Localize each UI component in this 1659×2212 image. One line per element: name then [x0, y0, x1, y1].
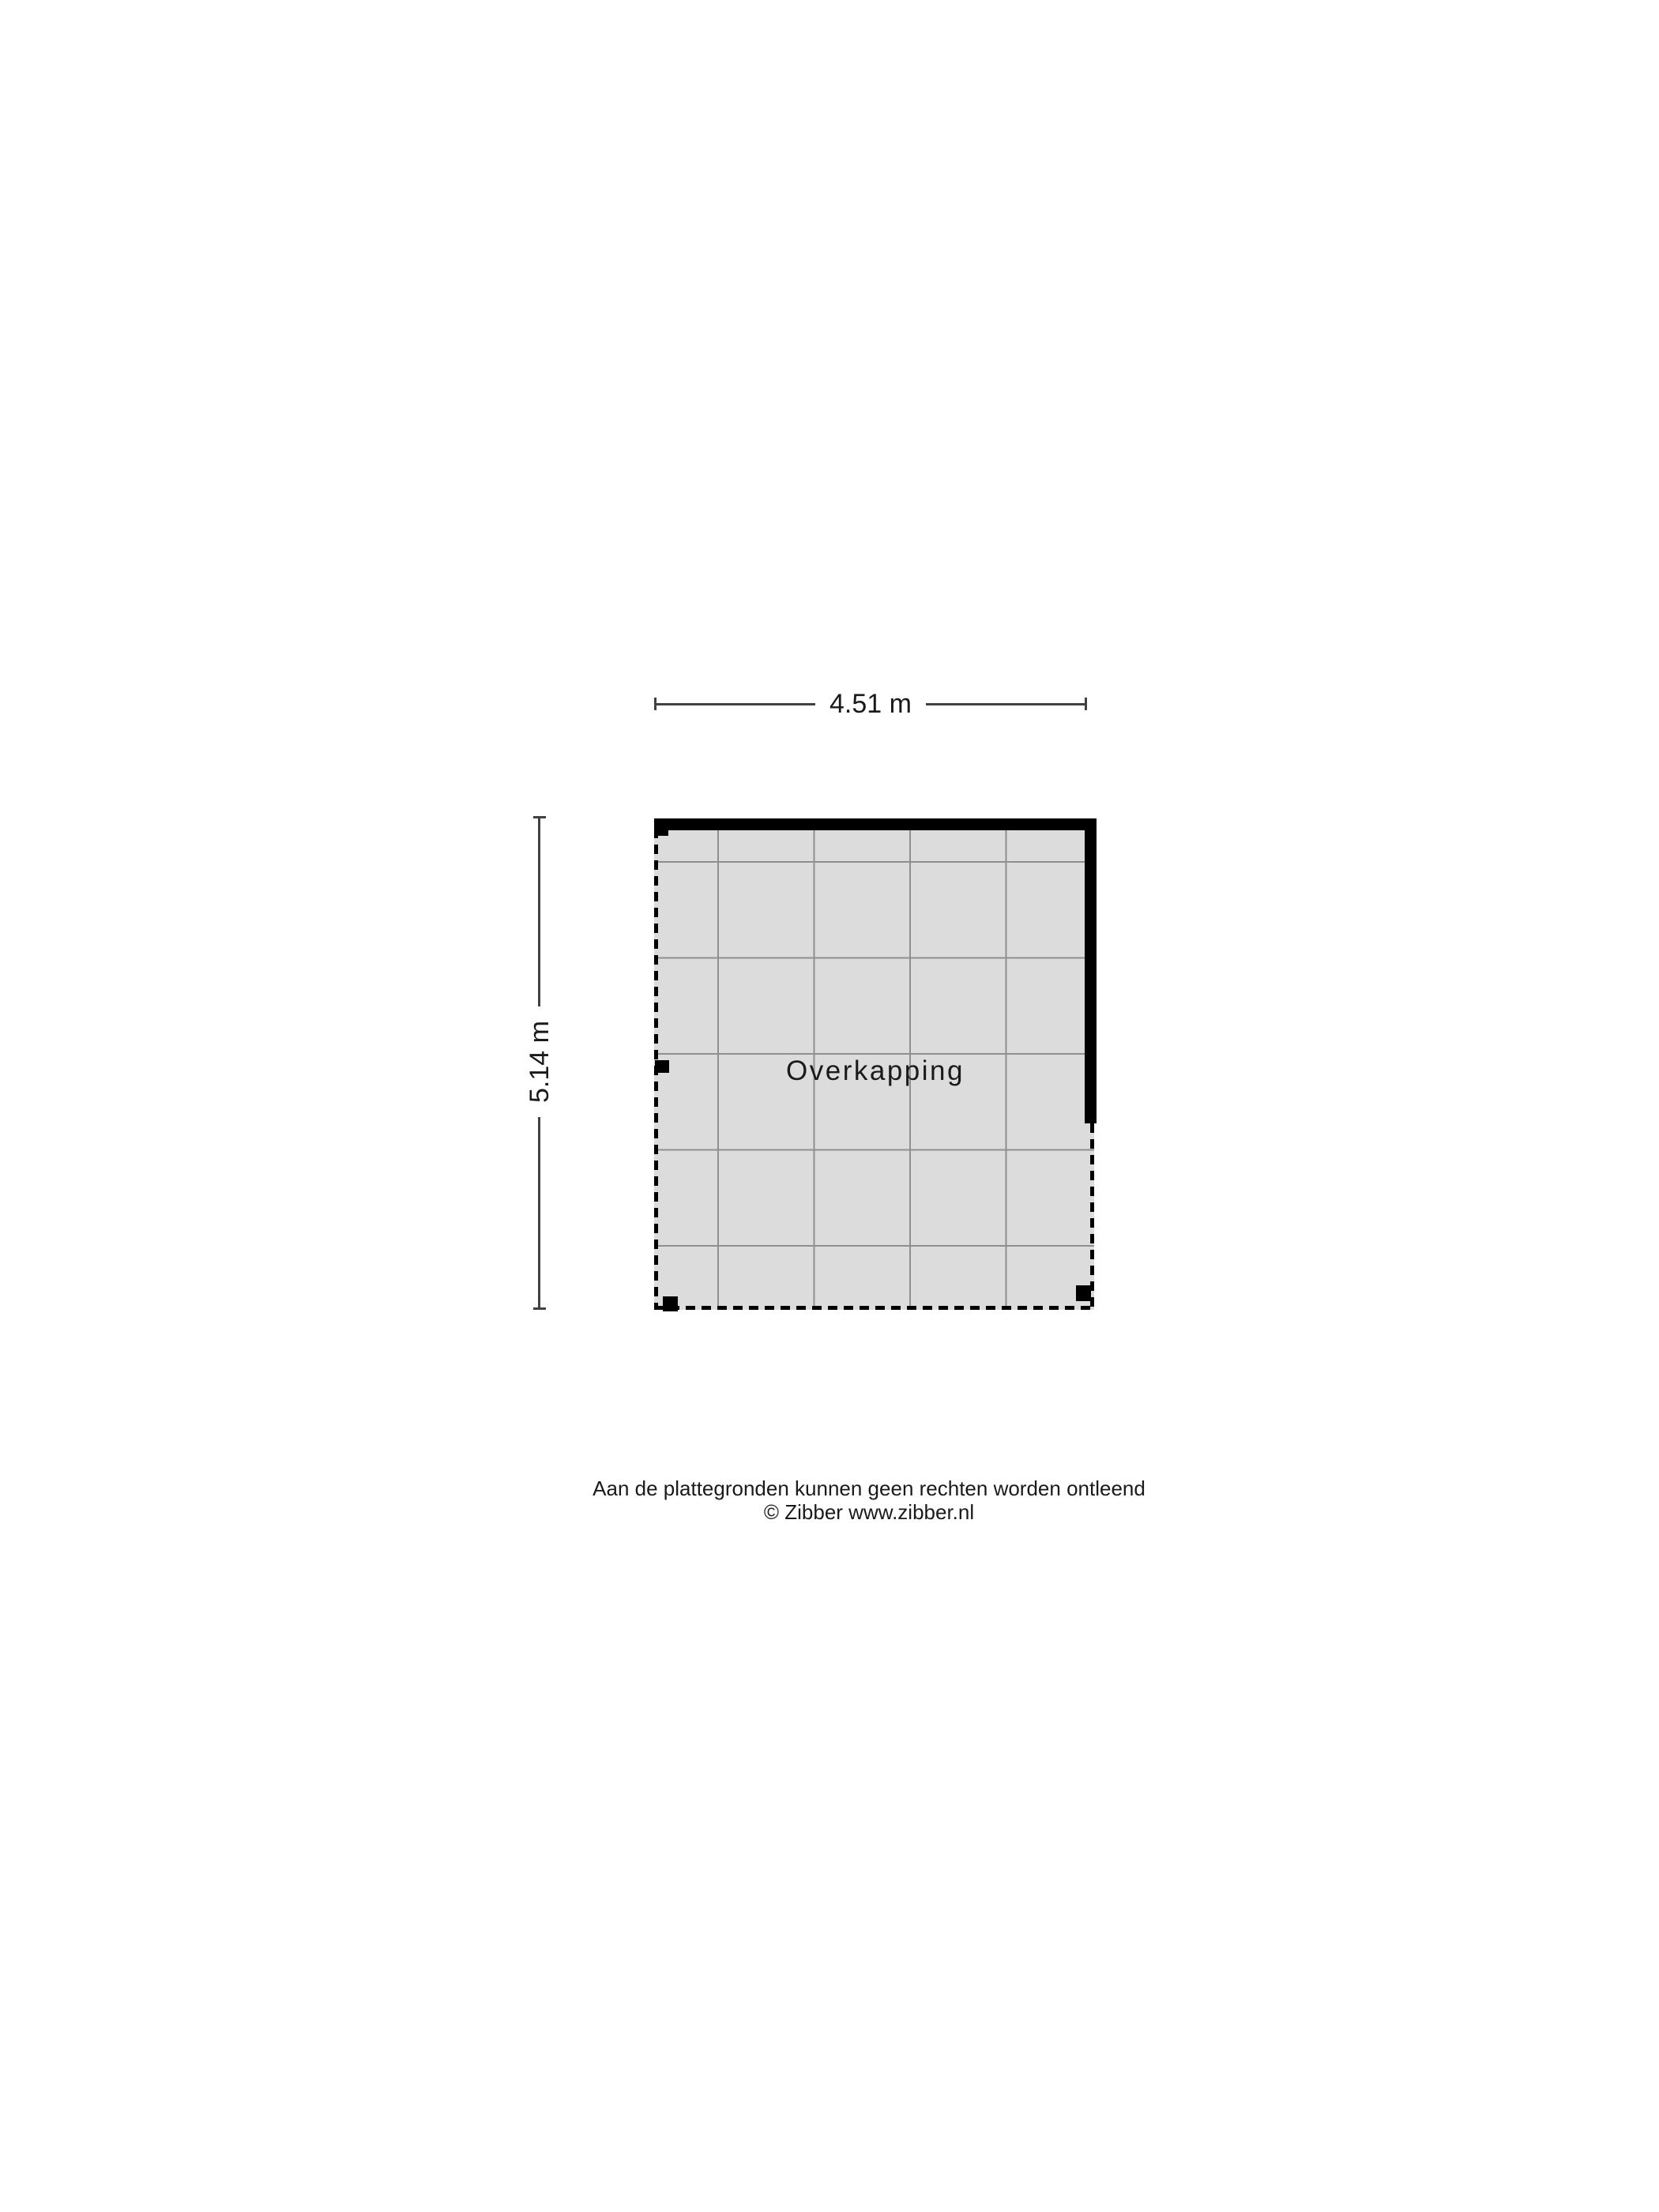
width-dimension-tick-right	[1085, 698, 1087, 710]
depth-dimension-tick-top	[533, 816, 546, 818]
depth-dimension-tick-bottom	[533, 1307, 546, 1310]
floorplan-page: 4.51 m 5.14 m Overkapping Aan de platteg…	[0, 0, 1659, 2212]
wall-right	[1085, 818, 1097, 1123]
width-dimension-tick-left	[654, 698, 656, 710]
column-post-bottom-left	[663, 1296, 678, 1311]
floor-plan: Overkapping	[654, 818, 1097, 1310]
column-post-mid-left	[655, 1060, 669, 1073]
room-label: Overkapping	[786, 1055, 965, 1087]
depth-dimension-label: 5.14 m	[525, 1006, 555, 1117]
wall-top	[654, 818, 1097, 830]
disclaimer-text: Aan de plattegronden kunnen geen rechten…	[592, 1477, 1145, 1500]
boundary-dashed-right-lower	[1090, 1123, 1094, 1310]
copyright-text: © Zibber www.zibber.nl	[592, 1500, 1145, 1524]
column-post-top-left	[654, 818, 668, 836]
column-post-bottom-right	[1076, 1285, 1091, 1301]
width-dimension-label: 4.51 m	[815, 689, 926, 719]
footer: Aan de plattegronden kunnen geen rechten…	[592, 1477, 1145, 1524]
boundary-dashed-bottom	[654, 1306, 1094, 1310]
